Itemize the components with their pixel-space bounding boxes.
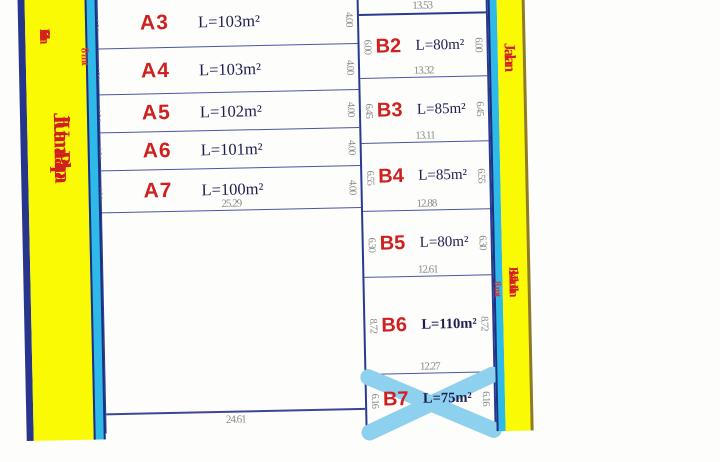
plot-b2-id: B2 <box>375 35 405 59</box>
plot-b3: 6.45 B3 L=85m² 6.45 13.11 <box>360 76 488 144</box>
plot-b4: 6.55 B4 L=85m² 6.55 12.88 <box>362 141 490 212</box>
plot-a5: 4.01 A5 L=102m² 4.00 <box>100 90 360 133</box>
road-right-width-note: 8 mt <box>492 281 503 296</box>
plot-a4-area: L=103m² <box>199 59 261 80</box>
plot-a3-area: L=103m² <box>198 11 260 32</box>
block-b-column: 13.53 6.00 B2 L=80m² 6.00 13.32 6.45 B3 … <box>357 0 497 430</box>
unlabeled-plot <box>102 208 365 415</box>
plot-b7-id: B7 <box>383 388 413 412</box>
block-b-rows: 6.00 B2 L=80m² 6.00 13.32 6.45 B3 L=85m²… <box>359 11 495 426</box>
road-right-bottom-label: Fisik Jalan Jalan <box>505 267 522 294</box>
plot-a4-id: A4 <box>141 58 175 83</box>
plot-a7: 4.01 A7 L=100m² 4.00 25.29 <box>101 166 361 213</box>
plot-a4: 4.01 A4 L=103m² 4.00 <box>99 44 359 95</box>
plot-b2-right-dim: 6.00 <box>472 37 483 52</box>
plot-b3-left-dim: 6.45 <box>363 104 374 119</box>
plot-b2: 6.00 B2 L=80m² 6.00 13.32 <box>359 13 487 79</box>
plot-b3-right-dim: 6.45 <box>474 101 485 116</box>
plot-b2-area: L=80m² <box>415 36 464 54</box>
plot-b3-id: B3 <box>377 98 407 122</box>
road-left-width-note: 8 mt <box>79 48 91 65</box>
plot-b4-right-dim: 6.55 <box>475 168 486 183</box>
plot-a6-area: L=101m² <box>200 139 262 160</box>
plot-b6-area: L=110m² <box>421 315 477 333</box>
road-left-primary-label: Jln Utama Palapa <box>48 112 75 177</box>
plot-b6: 8.72 B6 L=110m² 8.72 12.27 <box>364 275 493 375</box>
plot-a3: 4.01 A3 L=103m² 4.00 <box>98 0 358 49</box>
plot-b4-id: B4 <box>378 165 408 189</box>
plot-b7-left-dim: 6.16 <box>369 393 380 408</box>
plot-b7-right-dim: 6.16 <box>480 391 491 406</box>
plot-b5-left-dim: 6.30 <box>366 237 377 252</box>
road-left-surface <box>24 0 93 441</box>
road-right-strip: Jalan Fisik Jalan Jalan 8 mt <box>487 0 534 431</box>
plot-b6-right-dim: 8.72 <box>478 316 489 331</box>
plot-b5-id: B5 <box>379 232 409 256</box>
plot-a6-id: A6 <box>142 138 176 163</box>
plot-b5: 6.30 B5 L=80m² 6.30 12.61 <box>363 209 491 278</box>
site-plan: 4.01 A3 L=103m² 4.00 4.01 A4 L=103m² 4.0… <box>0 0 720 427</box>
plot-a6-right-dim: 4.00 <box>346 139 357 154</box>
block-a-column: 4.01 A3 L=103m² 4.00 4.01 A4 L=103m² 4.0… <box>96 0 366 433</box>
plot-a5-id: A5 <box>142 100 176 125</box>
plot-b6-left-dim: 8.72 <box>367 318 378 333</box>
plot-a3-right-dim: 4.00 <box>343 11 354 26</box>
plot-a6: 4.01 A6 L=101m² 4.00 <box>100 128 360 171</box>
plot-a3-id: A3 <box>140 10 174 35</box>
plot-b5-area: L=80m² <box>420 234 469 252</box>
road-left-secondary-label: Fisik Jalan <box>35 28 51 39</box>
plot-b7: 6.16 B7 L=75m² 6.16 <box>366 372 494 426</box>
road-left-strip: Fisik Jalan Jln Utama Palapa 8 mt <box>17 0 106 441</box>
bottom-partial-plot: 24.61 <box>106 410 366 459</box>
plot-b3-area: L=85m² <box>417 100 466 118</box>
plot-b6-id: B6 <box>381 313 411 337</box>
plot-b5-right-dim: 6.30 <box>477 235 488 250</box>
plot-a4-right-dim: 4.00 <box>344 59 355 74</box>
plot-b4-area: L=85m² <box>418 167 467 185</box>
plot-b2-left-dim: 6.00 <box>361 40 372 55</box>
road-right-top-label: Jalan <box>500 43 519 71</box>
block-b-top-dim: 13.53 <box>359 0 486 13</box>
plot-a7-right-dim: 4.00 <box>346 179 357 194</box>
plot-b4-left-dim: 6.55 <box>364 170 375 185</box>
plot-a5-right-dim: 4.00 <box>345 101 356 116</box>
plot-b7-area: L=75m² <box>423 390 472 408</box>
plot-a5-area: L=102m² <box>200 101 262 122</box>
